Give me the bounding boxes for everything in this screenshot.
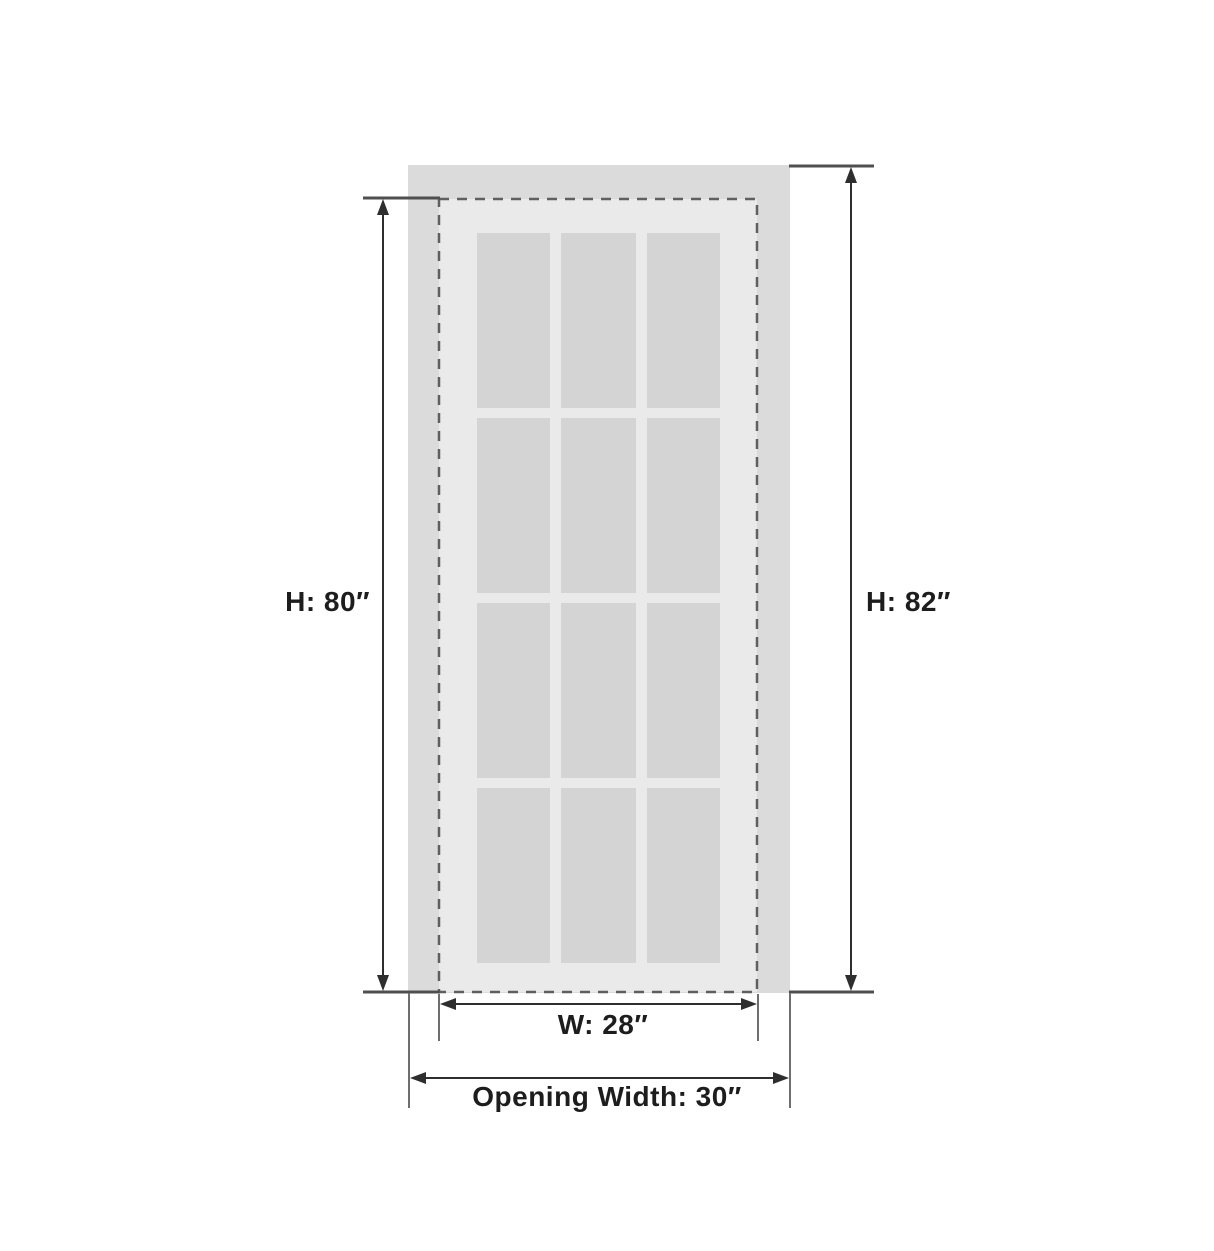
opening-height-dimension: [789, 166, 874, 992]
opening-width-label: Opening Width: 30″: [407, 1082, 807, 1112]
arrow-up-icon: [377, 199, 389, 215]
glass-pane: [477, 788, 550, 963]
glass-pane: [647, 603, 720, 778]
glass-pane: [647, 788, 720, 963]
glass-pane: [561, 418, 636, 593]
door-height-label: H: 80″: [236, 587, 370, 617]
arrow-right-icon: [741, 998, 757, 1010]
arrow-up-icon: [845, 167, 857, 183]
opening-height-label: H: 82″: [866, 587, 1036, 617]
glass-pane: [647, 233, 720, 408]
door-dimension-diagram: H: 80″ H: 82″ W: 28″ Opening Width: 30″: [0, 0, 1214, 1251]
arrow-down-icon: [845, 975, 857, 991]
arrow-down-icon: [377, 975, 389, 991]
glass-pane: [477, 418, 550, 593]
glass-pane: [647, 418, 720, 593]
glass-pane: [561, 233, 636, 408]
door-width-label: W: 28″: [473, 1010, 733, 1040]
diagram-drawing: [0, 0, 1214, 1251]
glass-pane: [561, 603, 636, 778]
glass-pane: [477, 603, 550, 778]
glass-pane: [561, 788, 636, 963]
arrow-left-icon: [440, 998, 456, 1010]
glass-pane: [477, 233, 550, 408]
